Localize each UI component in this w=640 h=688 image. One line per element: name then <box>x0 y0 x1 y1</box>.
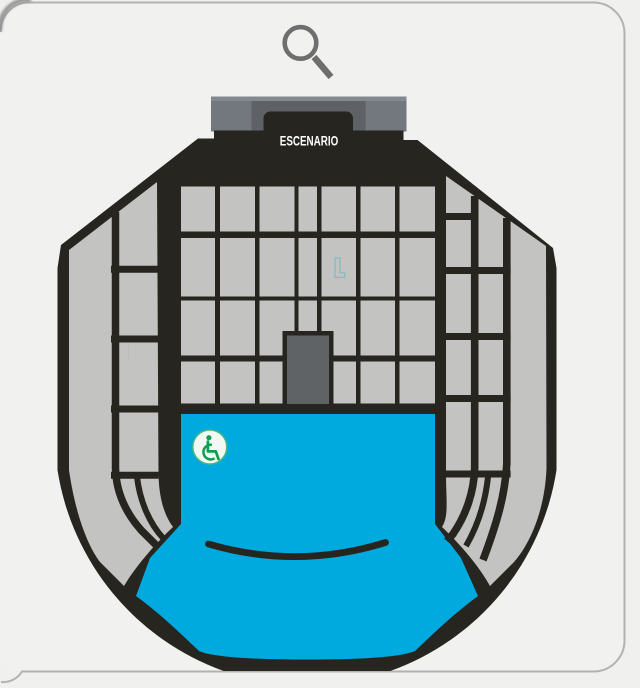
svg-text:ESCENARIO: ESCENARIO <box>280 134 339 149</box>
